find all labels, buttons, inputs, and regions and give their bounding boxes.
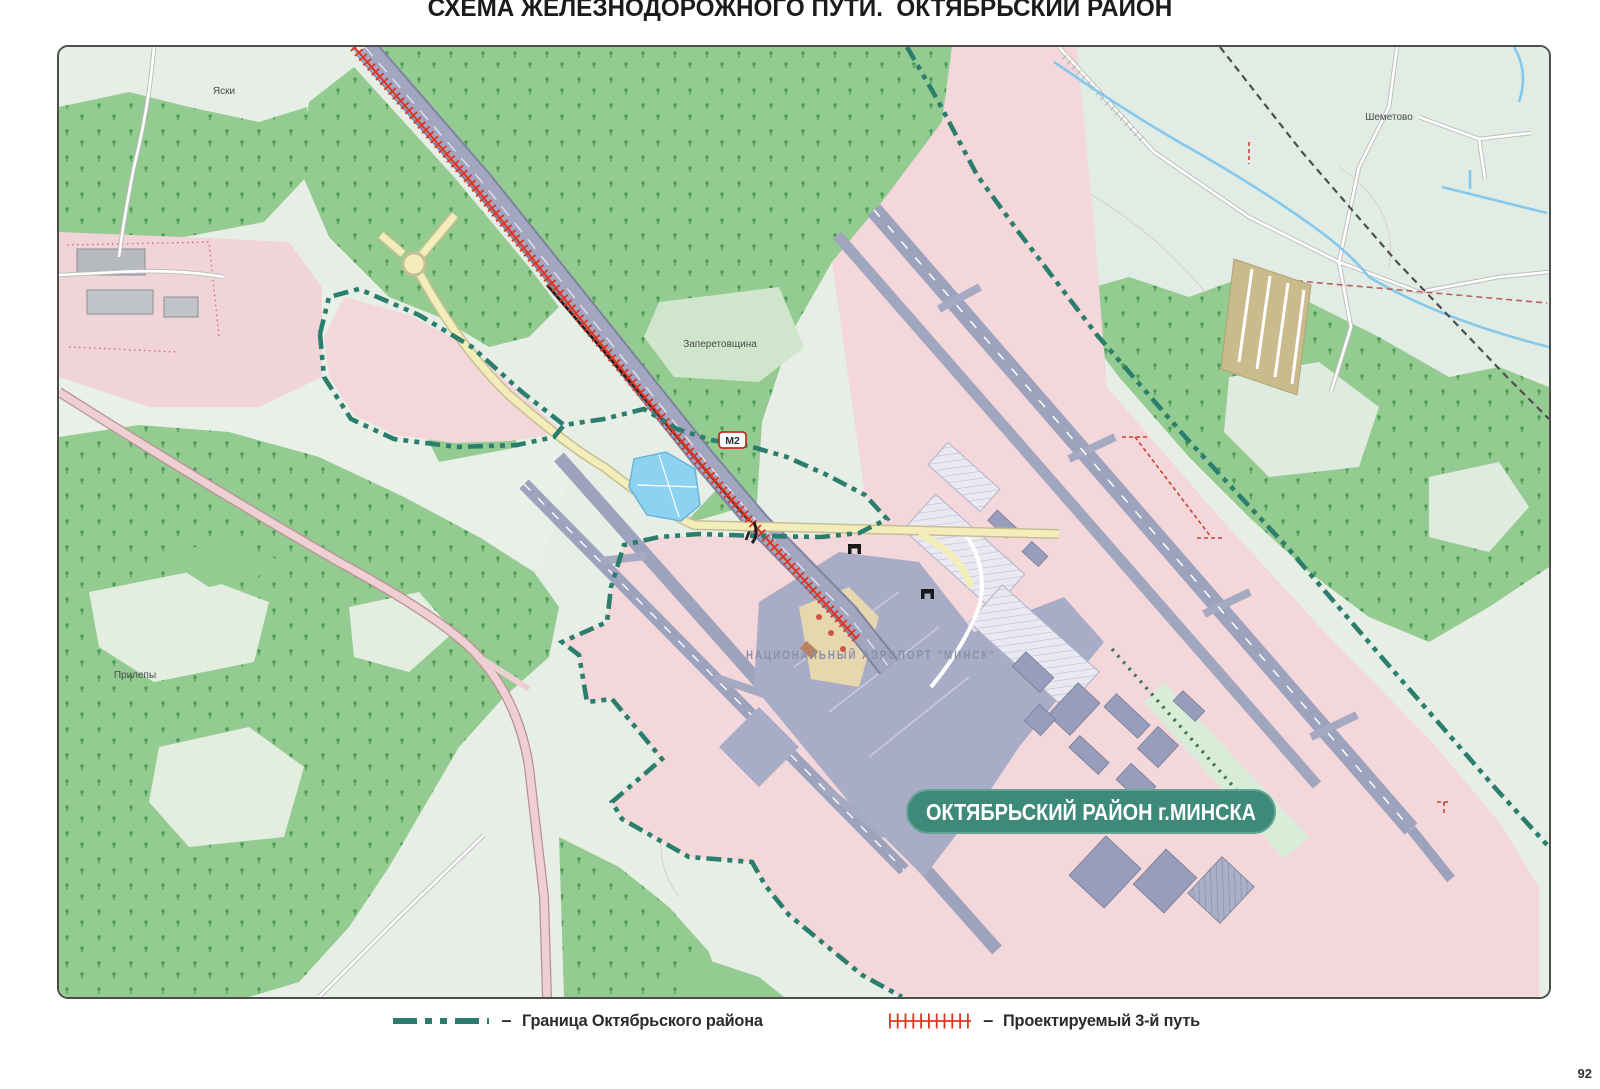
map-svg: М2 Яски Шеметово Заперетовщина Прилепы Н… xyxy=(59,47,1549,997)
legend-dash: – xyxy=(983,1010,993,1031)
legend-dash: – xyxy=(501,1010,511,1031)
district-border-symbol xyxy=(391,1014,491,1028)
projected-track-symbol xyxy=(887,1012,973,1030)
village-zaperetovshchina: Заперетовщина xyxy=(683,339,757,350)
legend-label-district-border: Граница Октябрьского района xyxy=(522,1011,763,1031)
page-number: 92 xyxy=(1578,1066,1592,1081)
svg-text:М2: М2 xyxy=(725,435,740,447)
page-title: СХЕМА ЖЕЛЕЗНОДОРОЖНОГО ПУТИ. ОКТЯБРЬСКИЙ… xyxy=(24,0,1576,23)
village-prilepy: Прилепы xyxy=(114,670,156,681)
legend-item-projected-track: – Проектируемый 3-й путь xyxy=(887,1010,1208,1031)
legend-item-district-border: – Граница Октябрьского района xyxy=(391,1010,772,1031)
map-image: М2 Яски Шеметово Заперетовщина Прилепы Н… xyxy=(57,45,1551,999)
legend-label-projected-track: Проектируемый 3-й путь xyxy=(1003,1011,1200,1031)
district-label-text: ОКТЯБРЬСКИЙ РАЙОН г.МИНСКА xyxy=(926,798,1256,825)
village-yaski: Яски xyxy=(213,86,235,97)
village-shemetovo: Шеметово xyxy=(1365,112,1413,123)
legend: – Граница Октябрьского района – Проектир… xyxy=(0,1010,1600,1031)
district-label-box: ОКТЯБРЬСКИЙ РАЙОН г.МИНСКА xyxy=(907,790,1275,833)
road-badge-m2: М2 xyxy=(719,432,746,448)
airport-label: НАЦИОНАЛЬНЫЙ АЭРОПОРТ "МИНСК" xyxy=(746,647,996,662)
